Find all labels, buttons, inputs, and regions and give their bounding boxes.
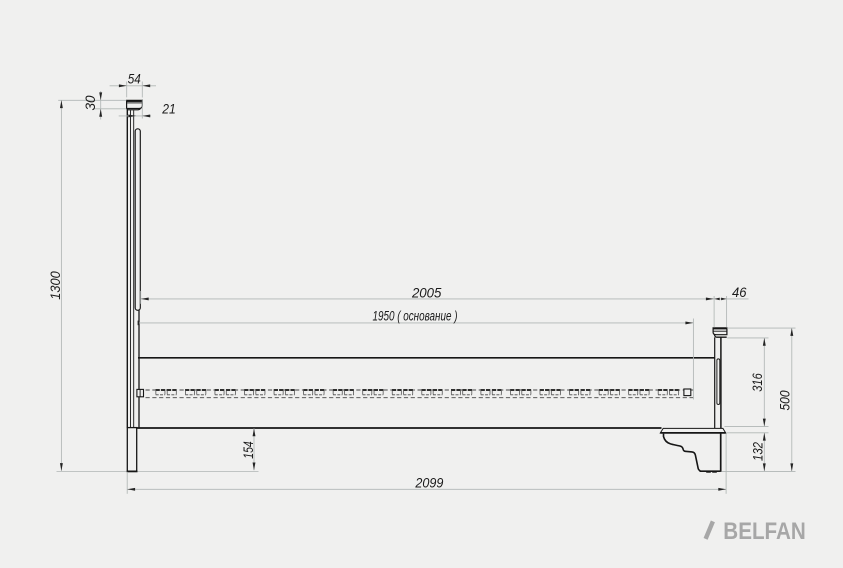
svg-text:BELFAN: BELFAN	[723, 518, 806, 545]
svg-text:1950 ( основание ): 1950 ( основание )	[373, 308, 458, 323]
svg-text:316: 316	[749, 373, 765, 392]
svg-text:54: 54	[128, 70, 141, 86]
svg-text:1300: 1300	[47, 271, 63, 300]
svg-text:21: 21	[161, 101, 175, 117]
svg-text:46: 46	[732, 284, 747, 300]
svg-text:154: 154	[240, 441, 256, 459]
svg-text:132: 132	[749, 442, 765, 461]
svg-text:2005: 2005	[411, 284, 442, 300]
svg-text:2099: 2099	[415, 474, 444, 490]
svg-text:30: 30	[82, 95, 98, 110]
svg-text:500: 500	[776, 390, 792, 410]
